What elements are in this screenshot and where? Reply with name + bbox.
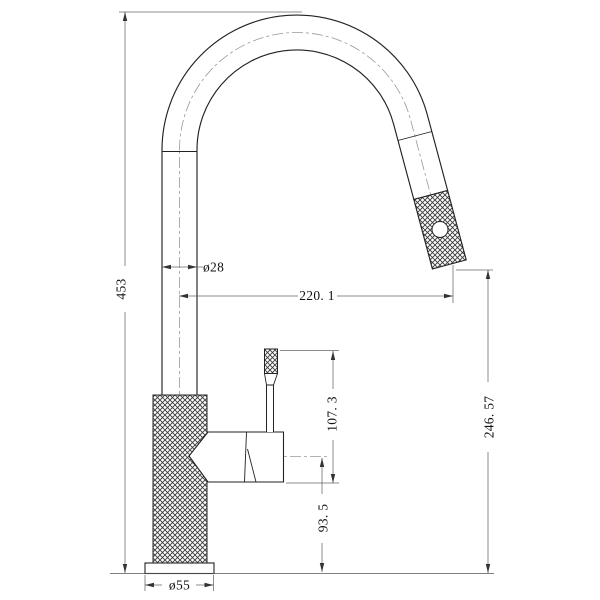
arrow-107-up xyxy=(331,351,335,360)
spray-head xyxy=(414,190,466,269)
spout-tube-seam xyxy=(398,132,432,141)
arrow-28-right xyxy=(188,265,197,269)
dim-base-diameter-label: ø55 xyxy=(169,578,190,593)
dim-overall-height-label: 453 xyxy=(114,278,129,299)
arrow-220-left xyxy=(179,294,188,298)
arrow-220-right xyxy=(444,294,453,298)
arrow-28-left xyxy=(162,265,171,269)
arrow-246-up xyxy=(486,270,490,279)
dim-handle-axis-height-label: 93. 5 xyxy=(316,504,331,533)
handle-housing xyxy=(189,432,284,482)
arrow-93-down xyxy=(320,563,324,572)
drawing-svg: 453 ø28 220. 1 246. 57 107. 3 93. 5 ø55 xyxy=(0,0,600,600)
spout-arc-centerline xyxy=(179,32,430,194)
faucet-technical-drawing: 453 ø28 220. 1 246. 57 107. 3 93. 5 ø55 xyxy=(0,0,600,600)
dim-spout-reach-label: 220. 1 xyxy=(299,288,335,303)
dim-outlet-height-label: 246. 57 xyxy=(482,396,497,439)
spray-outlet-hole xyxy=(432,222,448,238)
lever-neck-taper xyxy=(265,374,278,386)
gooseneck-spout xyxy=(162,15,448,395)
spout-inner-edge xyxy=(197,50,414,395)
knurled-lever-grip xyxy=(265,349,278,374)
arrow-93-up xyxy=(320,458,324,467)
arrow-246-down xyxy=(486,564,490,573)
arrow-55-right xyxy=(205,583,214,587)
arrow-107-down xyxy=(331,474,335,483)
spout-outer-edge xyxy=(162,15,448,395)
arrow-453-up xyxy=(123,12,127,21)
arrow-453-down xyxy=(123,564,127,573)
lever-rod-fill xyxy=(267,385,274,432)
dim-spout-diameter-label: ø28 xyxy=(203,260,224,275)
base-plate xyxy=(145,563,214,574)
arrow-55-left xyxy=(145,583,154,587)
dim-lever-top-height-label: 107. 3 xyxy=(325,396,340,432)
faucet-body xyxy=(145,395,214,574)
knurled-body xyxy=(153,395,207,563)
